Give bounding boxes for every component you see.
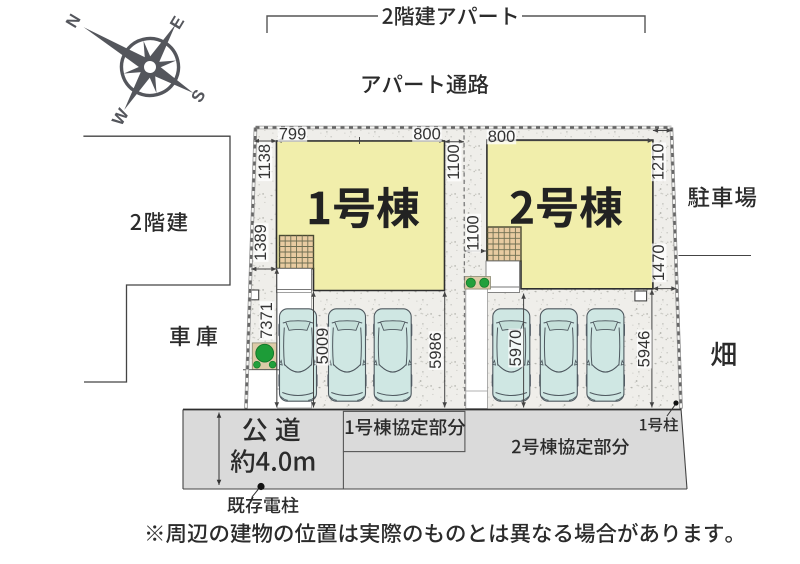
svg-text:5009: 5009	[314, 328, 332, 365]
svg-text:1389: 1389	[252, 224, 270, 261]
svg-text:800: 800	[488, 128, 516, 146]
svg-text:799: 799	[279, 125, 307, 143]
svg-text:800: 800	[413, 125, 441, 143]
svg-text:1100: 1100	[445, 144, 463, 179]
svg-text:5986: 5986	[427, 332, 445, 369]
svg-text:1470: 1470	[650, 244, 668, 281]
svg-text:1210: 1210	[650, 143, 668, 180]
svg-text:5946: 5946	[635, 331, 653, 368]
svg-text:1138: 1138	[256, 144, 274, 179]
svg-text:7371: 7371	[258, 302, 276, 339]
svg-text:5970: 5970	[507, 330, 525, 367]
svg-text:1100: 1100	[465, 215, 483, 250]
